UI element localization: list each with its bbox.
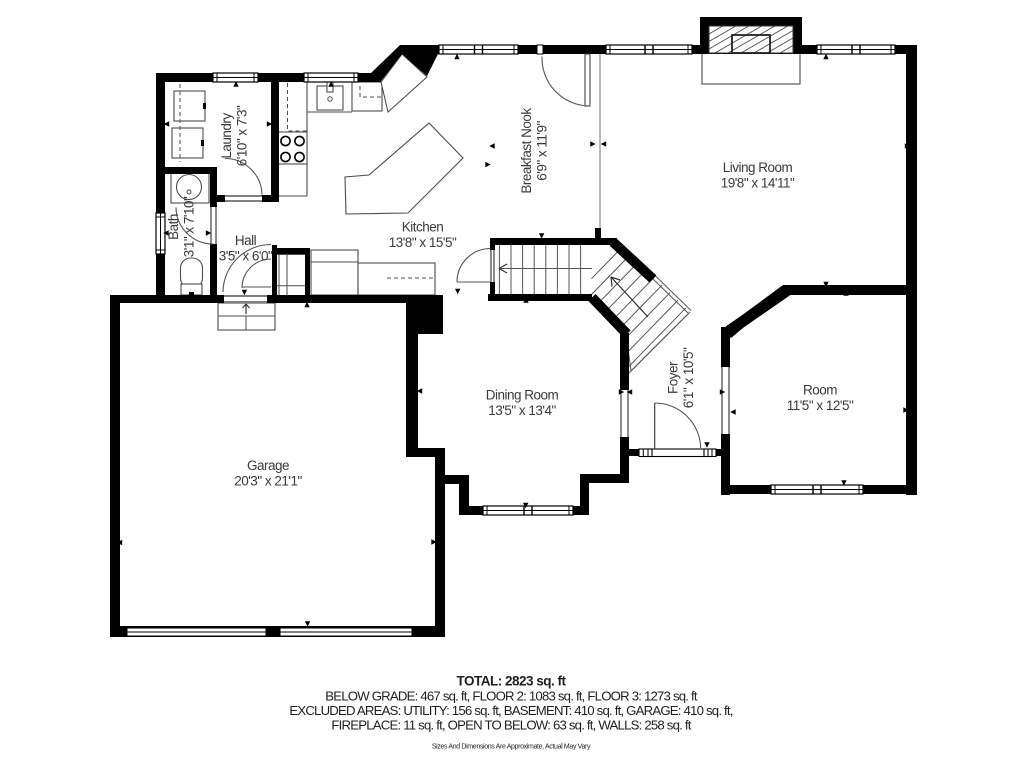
svg-text:11'5" x 12'5": 11'5" x 12'5" [787,398,854,413]
svg-text:BELOW GRADE: 467 sq. ft, FLOOR: BELOW GRADE: 467 sq. ft, FLOOR 2: 1083 s… [325,689,698,704]
svg-text:13'8" x 15'5": 13'8" x 15'5" [389,235,457,250]
svg-text:19'8" x 14'11": 19'8" x 14'11" [721,176,795,191]
svg-text:Kitchen: Kitchen [402,220,444,235]
svg-text:3'5" x 6'0": 3'5" x 6'0" [219,249,273,264]
svg-text:TOTAL: 2823 sq. ft: TOTAL: 2823 sq. ft [456,674,566,689]
svg-text:Garage: Garage [247,458,289,473]
svg-text:3'1" x 7'10": 3'1" x 7'10" [182,196,197,257]
svg-text:Laundry: Laundry [219,113,234,159]
svg-text:Dining Room: Dining Room [486,388,559,403]
svg-text:6'9" x 11'9": 6'9" x 11'9" [535,121,550,181]
svg-text:Foyer: Foyer [666,361,681,394]
svg-text:Hall: Hall [235,233,257,248]
svg-text:6'10" x 7'3": 6'10" x 7'3" [235,105,250,166]
svg-text:EXCLUDED AREAS: UTILITY: 156 s: EXCLUDED AREAS: UTILITY: 156 sq. ft, BAS… [289,703,732,718]
svg-text:Bath: Bath [166,214,181,240]
svg-text:6'1" x 10'5": 6'1" x 10'5" [681,347,696,408]
svg-text:20'3" x 21'1": 20'3" x 21'1" [234,474,302,489]
svg-text:Living Room: Living Room [723,160,793,175]
svg-text:FIREPLACE: 11 sq. ft, OPEN TO: FIREPLACE: 11 sq. ft, OPEN TO BELOW: 63 … [331,718,691,733]
svg-text:Room: Room [803,383,837,398]
svg-text:13'5" x 13'4": 13'5" x 13'4" [488,403,556,418]
svg-text:Breakfast Nook: Breakfast Nook [519,108,534,194]
svg-text:Sizes And Dimensions Are Appro: Sizes And Dimensions Are Approximate, Ac… [432,744,591,751]
